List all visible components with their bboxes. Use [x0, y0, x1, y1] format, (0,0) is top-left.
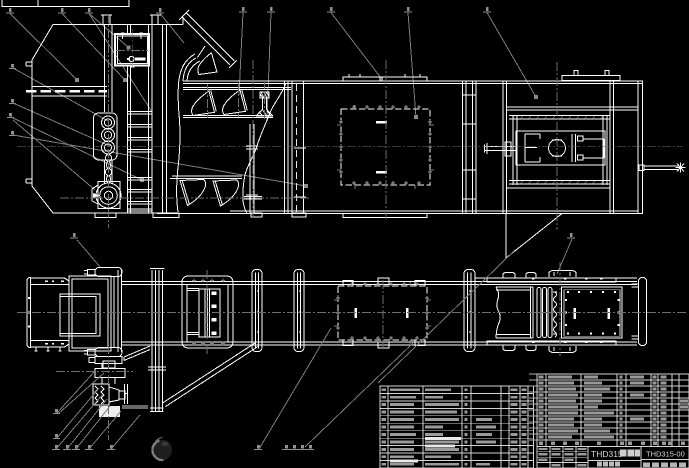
svg-text:THD315-00: THD315-00: [646, 450, 685, 459]
svg-text:THD315: THD315: [591, 449, 623, 459]
